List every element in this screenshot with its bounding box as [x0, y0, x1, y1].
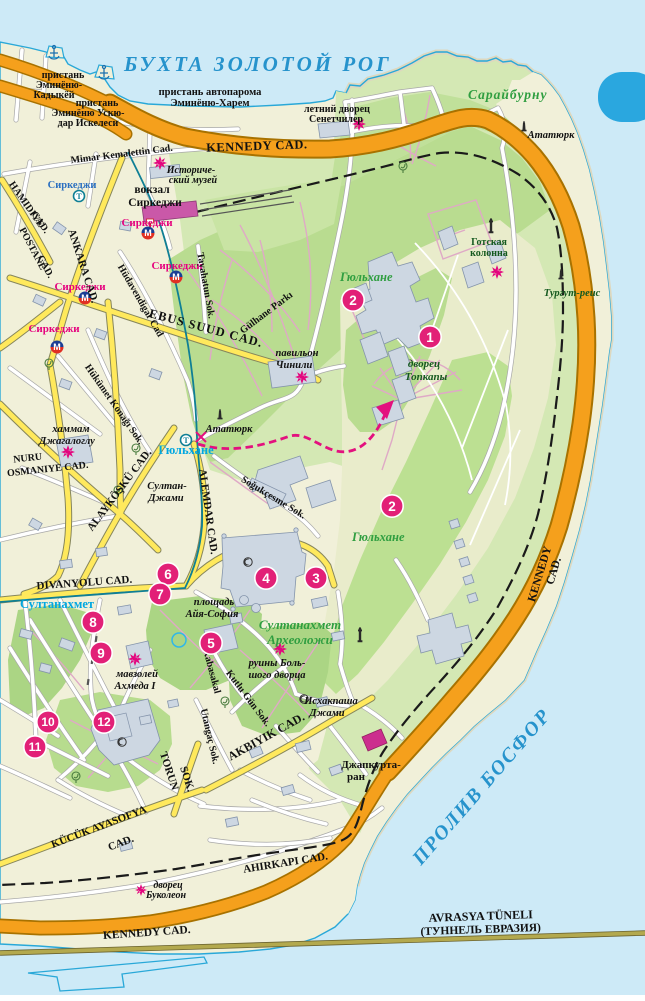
svg-text:1: 1 — [426, 330, 434, 345]
svg-text:10: 10 — [41, 715, 55, 729]
svg-text:руины Боль-: руины Боль- — [248, 658, 306, 669]
svg-text:Сиркеджи: Сиркеджи — [151, 260, 203, 272]
svg-text:Султан-: Султан- — [147, 481, 187, 492]
svg-text:Ататюрк: Ататюрк — [527, 130, 576, 141]
svg-text:пристань автопарома: пристань автопарома — [159, 87, 263, 98]
svg-text:Султанахмет: Султанахмет — [259, 617, 341, 632]
svg-text:T: T — [76, 192, 82, 201]
svg-text:БУХТА ЗОЛОТОЙ РОГ: БУХТА ЗОЛОТОЙ РОГ — [123, 52, 392, 76]
svg-text:Ахмеда I: Ахмеда I — [113, 681, 156, 692]
svg-text:площадь: площадь — [194, 597, 235, 608]
svg-text:2: 2 — [349, 293, 357, 308]
svg-text:дворец: дворец — [408, 358, 440, 370]
svg-text:Сиркеджи: Сиркеджи — [54, 281, 106, 293]
svg-text:Топкапы: Топкапы — [405, 371, 448, 383]
svg-text:M: M — [172, 272, 180, 282]
svg-text:4: 4 — [262, 571, 270, 586]
svg-text:Ататюрк: Ататюрк — [205, 424, 254, 435]
svg-text:Джами: Джами — [147, 493, 183, 504]
svg-text:Сиркеджи: Сиркеджи — [28, 323, 80, 335]
svg-text:12: 12 — [97, 715, 111, 729]
svg-text:хаммам: хаммам — [51, 424, 89, 435]
svg-text:Сиркеджи: Сиркеджи — [128, 197, 182, 209]
svg-text:Готская: Готская — [471, 237, 507, 248]
svg-text:M: M — [144, 228, 152, 238]
svg-text:2: 2 — [388, 499, 396, 514]
svg-text:6: 6 — [164, 567, 172, 582]
svg-text:Джапкурта-: Джапкурта- — [341, 759, 401, 771]
svg-text:Сиркеджи: Сиркеджи — [121, 217, 173, 229]
svg-text:Кадыкёй: Кадыкёй — [34, 90, 75, 101]
svg-text:шого дворца: шого дворца — [248, 670, 305, 681]
svg-text:Чинили: Чинили — [276, 360, 313, 371]
svg-text:мавзолей: мавзолей — [115, 669, 158, 680]
svg-text:ран: ран — [347, 771, 366, 783]
svg-text:дар Искелеси: дар Искелеси — [58, 118, 119, 129]
svg-text:Эминёню-Харем: Эминёню-Харем — [170, 98, 249, 109]
svg-text:Сиркеджи: Сиркеджи — [48, 180, 97, 191]
svg-text:колонна: колонна — [470, 248, 508, 259]
svg-text:Сарайбурну: Сарайбурну — [468, 87, 547, 102]
svg-text:Археоложи: Археоложи — [266, 632, 333, 647]
svg-text:Султанахмет: Султанахмет — [20, 597, 94, 611]
svg-text:Джами: Джами — [308, 708, 344, 719]
svg-text:Исхакпаша: Исхакпаша — [303, 696, 357, 707]
svg-text:павильон: павильон — [276, 348, 319, 359]
svg-text:7: 7 — [156, 587, 164, 602]
svg-text:M: M — [53, 342, 61, 352]
svg-text:Айя-София: Айя-София — [185, 609, 239, 620]
svg-text:5: 5 — [207, 636, 215, 651]
svg-text:8: 8 — [89, 615, 97, 630]
svg-text:Буколеон: Буколеон — [145, 890, 187, 901]
svg-text:вокзал: вокзал — [134, 184, 170, 196]
svg-text:Гюльхане: Гюльхане — [351, 530, 405, 544]
svg-text:Гюльхане: Гюльхане — [339, 270, 393, 284]
svg-text:Джагалоглу: Джагалоглу — [38, 436, 95, 447]
svg-text:Тургут-реис: Тургут-реис — [544, 288, 601, 299]
svg-text:3: 3 — [312, 571, 320, 586]
svg-text:ский музей: ский музей — [169, 175, 218, 186]
svg-text:Гюльхане: Гюльхане — [158, 443, 214, 457]
svg-text:9: 9 — [97, 646, 105, 661]
svg-text:11: 11 — [29, 740, 42, 754]
svg-text:Сенетчилер: Сенетчилер — [309, 114, 363, 125]
